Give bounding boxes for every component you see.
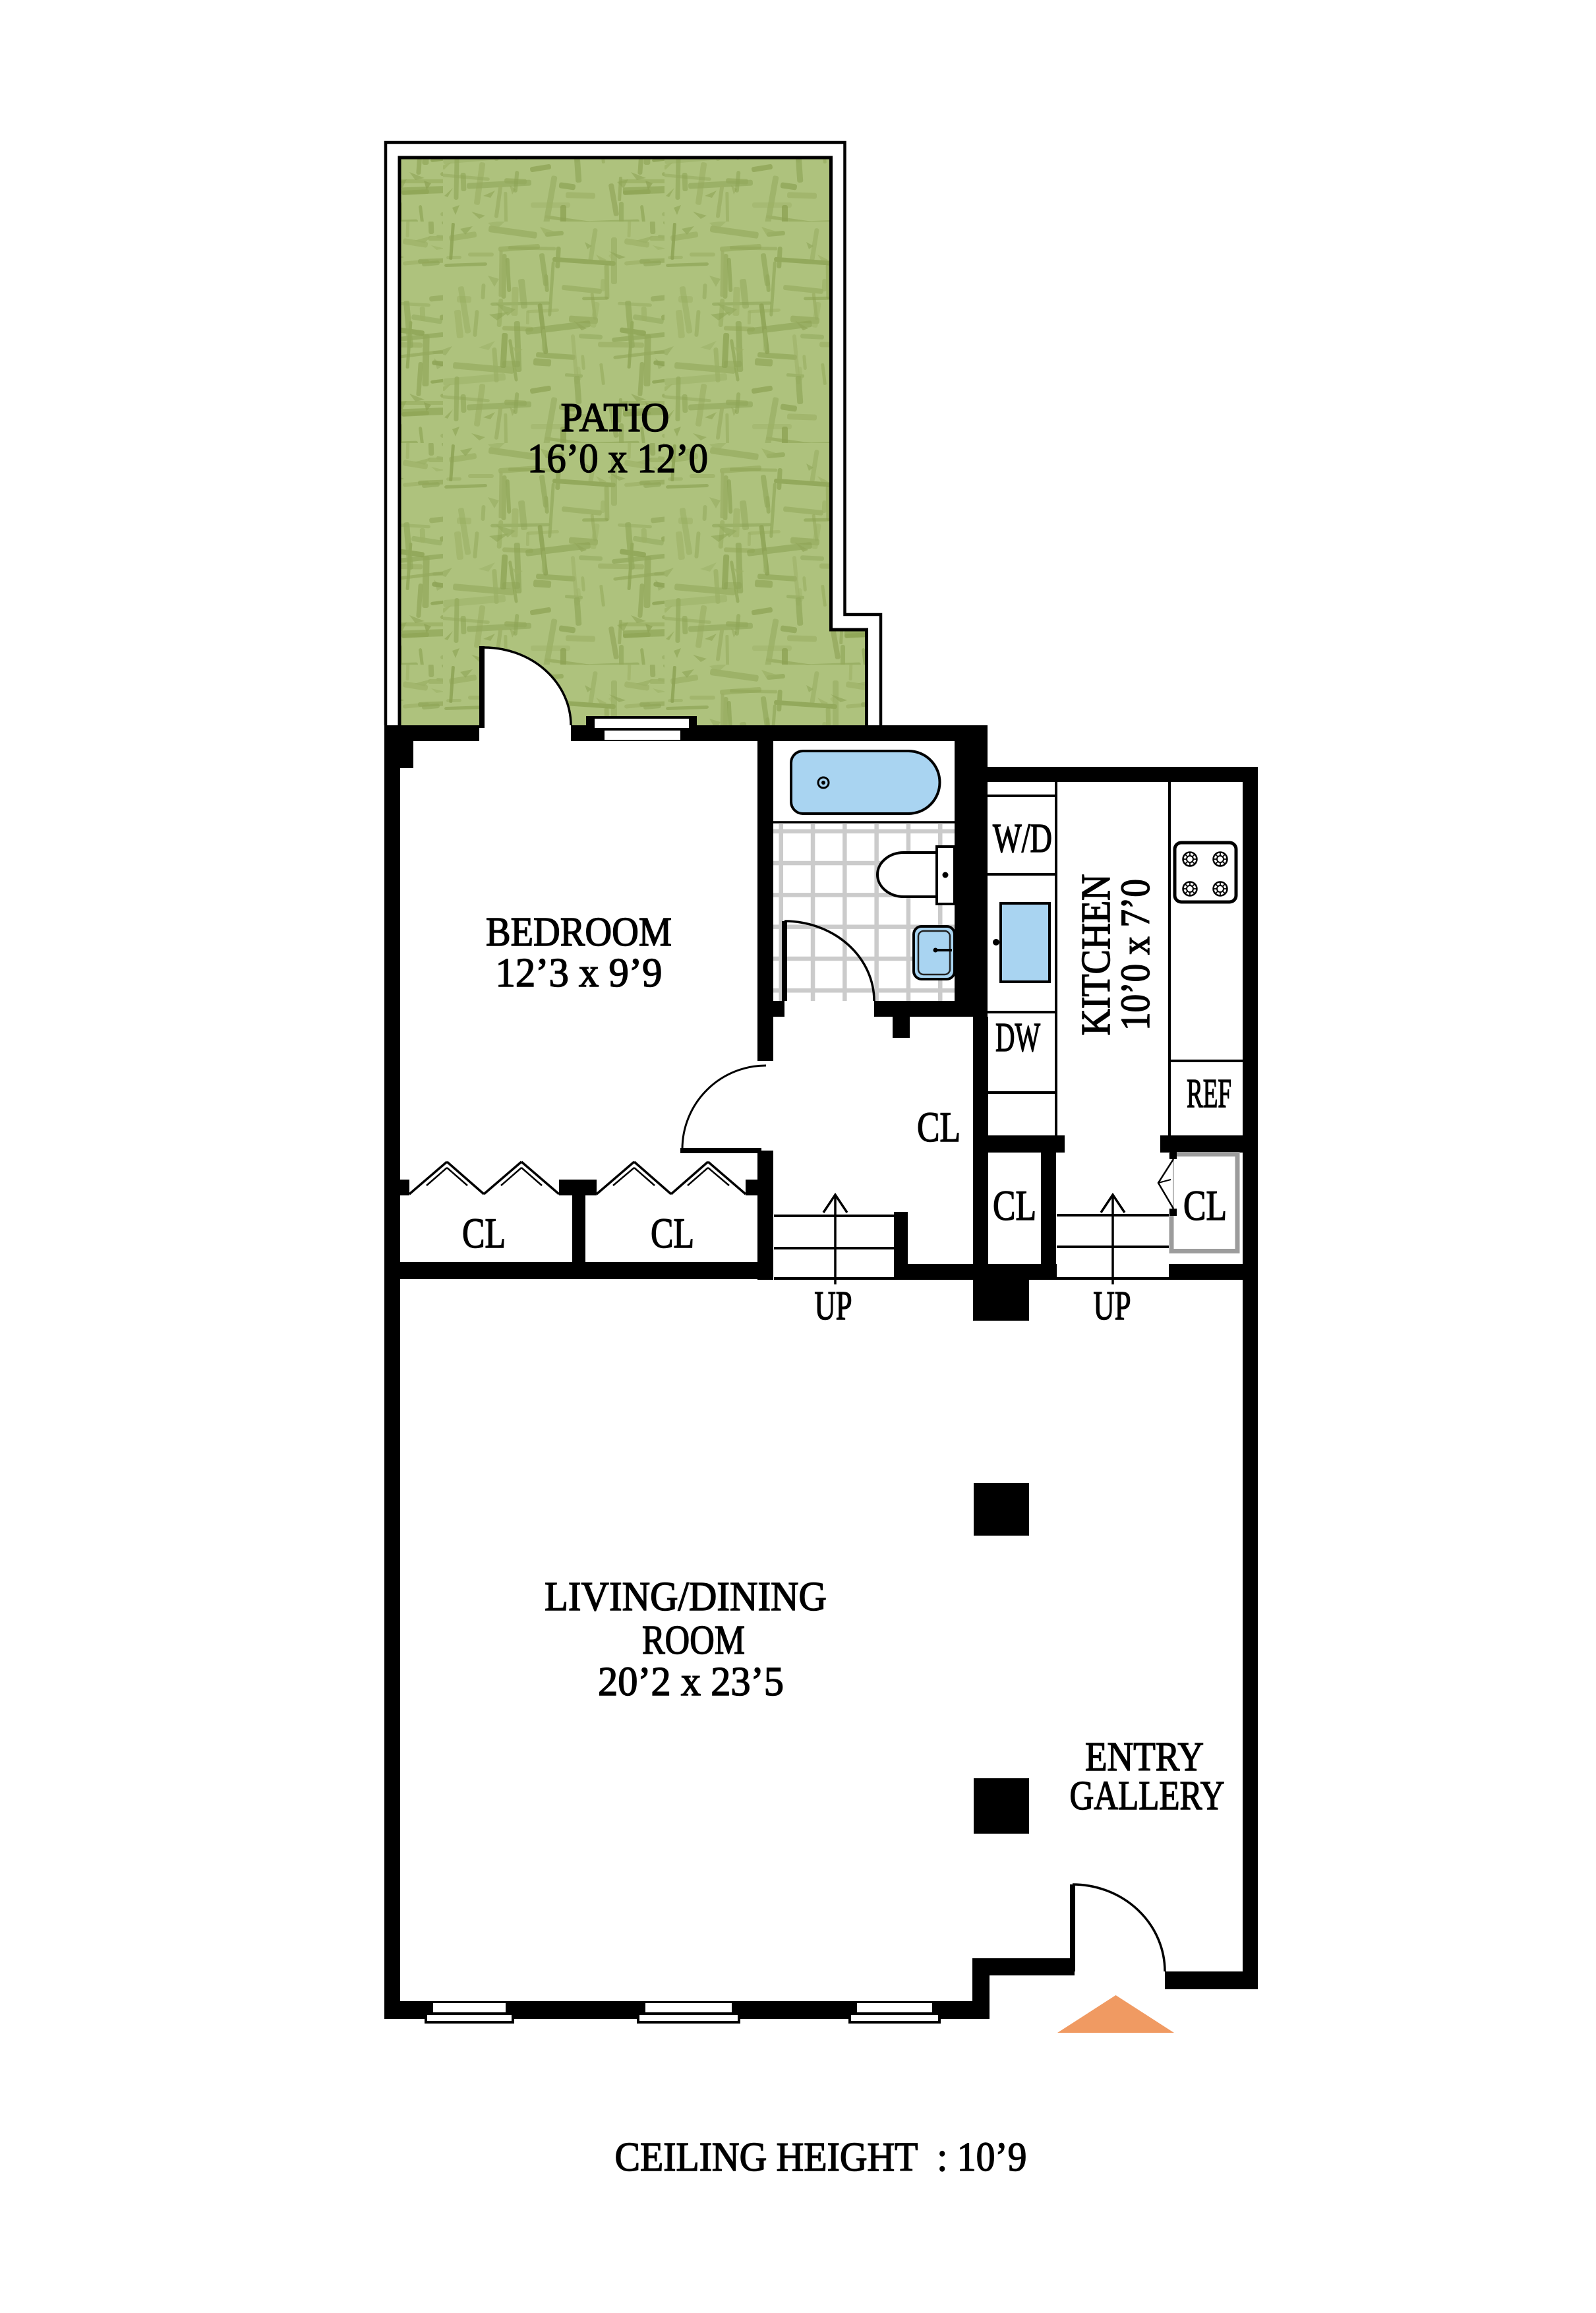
svg-text:CEILING HEIGHT : 10’9: CEILING HEIGHT : 10’9 xyxy=(615,2135,1027,2180)
svg-text:12’3 x 9’9: 12’3 x 9’9 xyxy=(496,951,663,996)
svg-text:UP: UP xyxy=(815,1284,852,1329)
svg-text:ROOM: ROOM xyxy=(642,1618,745,1663)
svg-text:DW: DW xyxy=(995,1015,1040,1060)
svg-text:PATIO: PATIO xyxy=(561,396,670,440)
svg-text:CL: CL xyxy=(993,1182,1036,1230)
svg-text:20’2 x 23’5: 20’2 x 23’5 xyxy=(598,1660,784,1704)
svg-text:ENTRY: ENTRY xyxy=(1085,1735,1204,1780)
svg-text:CL: CL xyxy=(462,1210,506,1257)
svg-text:16’0 x 12’0: 16’0 x 12’0 xyxy=(527,436,708,481)
svg-text:REF: REF xyxy=(1187,1071,1231,1116)
svg-text:CL: CL xyxy=(1183,1182,1227,1230)
svg-text:GALLERY: GALLERY xyxy=(1070,1774,1225,1818)
svg-text:BEDROOM: BEDROOM xyxy=(486,910,672,955)
svg-text:KITCHEN: KITCHEN xyxy=(1074,874,1119,1036)
svg-text:CL: CL xyxy=(917,1104,961,1151)
svg-text:UP: UP xyxy=(1094,1284,1131,1329)
svg-text:LIVING/DINING: LIVING/DINING xyxy=(545,1575,827,1619)
svg-text:W/D: W/D xyxy=(993,816,1052,861)
svg-text:CL: CL xyxy=(651,1210,694,1257)
svg-text:10’0 x 7’0: 10’0 x 7’0 xyxy=(1113,879,1158,1031)
